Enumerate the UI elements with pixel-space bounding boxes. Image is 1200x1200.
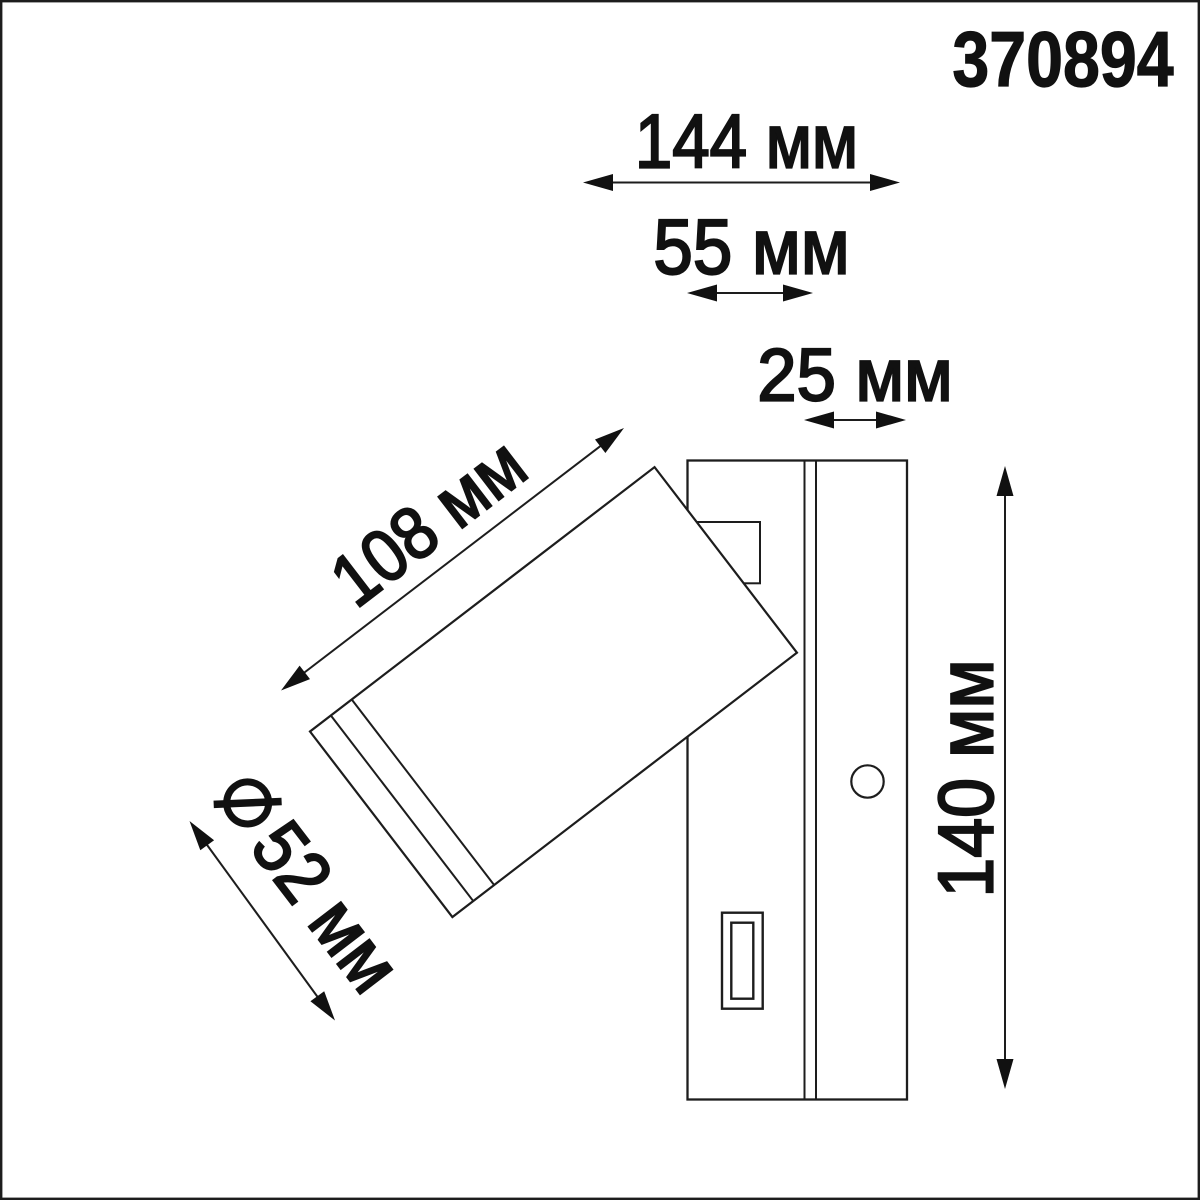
svg-text:370894: 370894 (952, 16, 1173, 103)
svg-text:25 мм: 25 мм (757, 335, 952, 417)
svg-text:144 мм: 144 мм (635, 100, 858, 185)
svg-text:140 мм: 140 мм (922, 659, 1009, 897)
svg-text:55 мм: 55 мм (653, 202, 849, 290)
